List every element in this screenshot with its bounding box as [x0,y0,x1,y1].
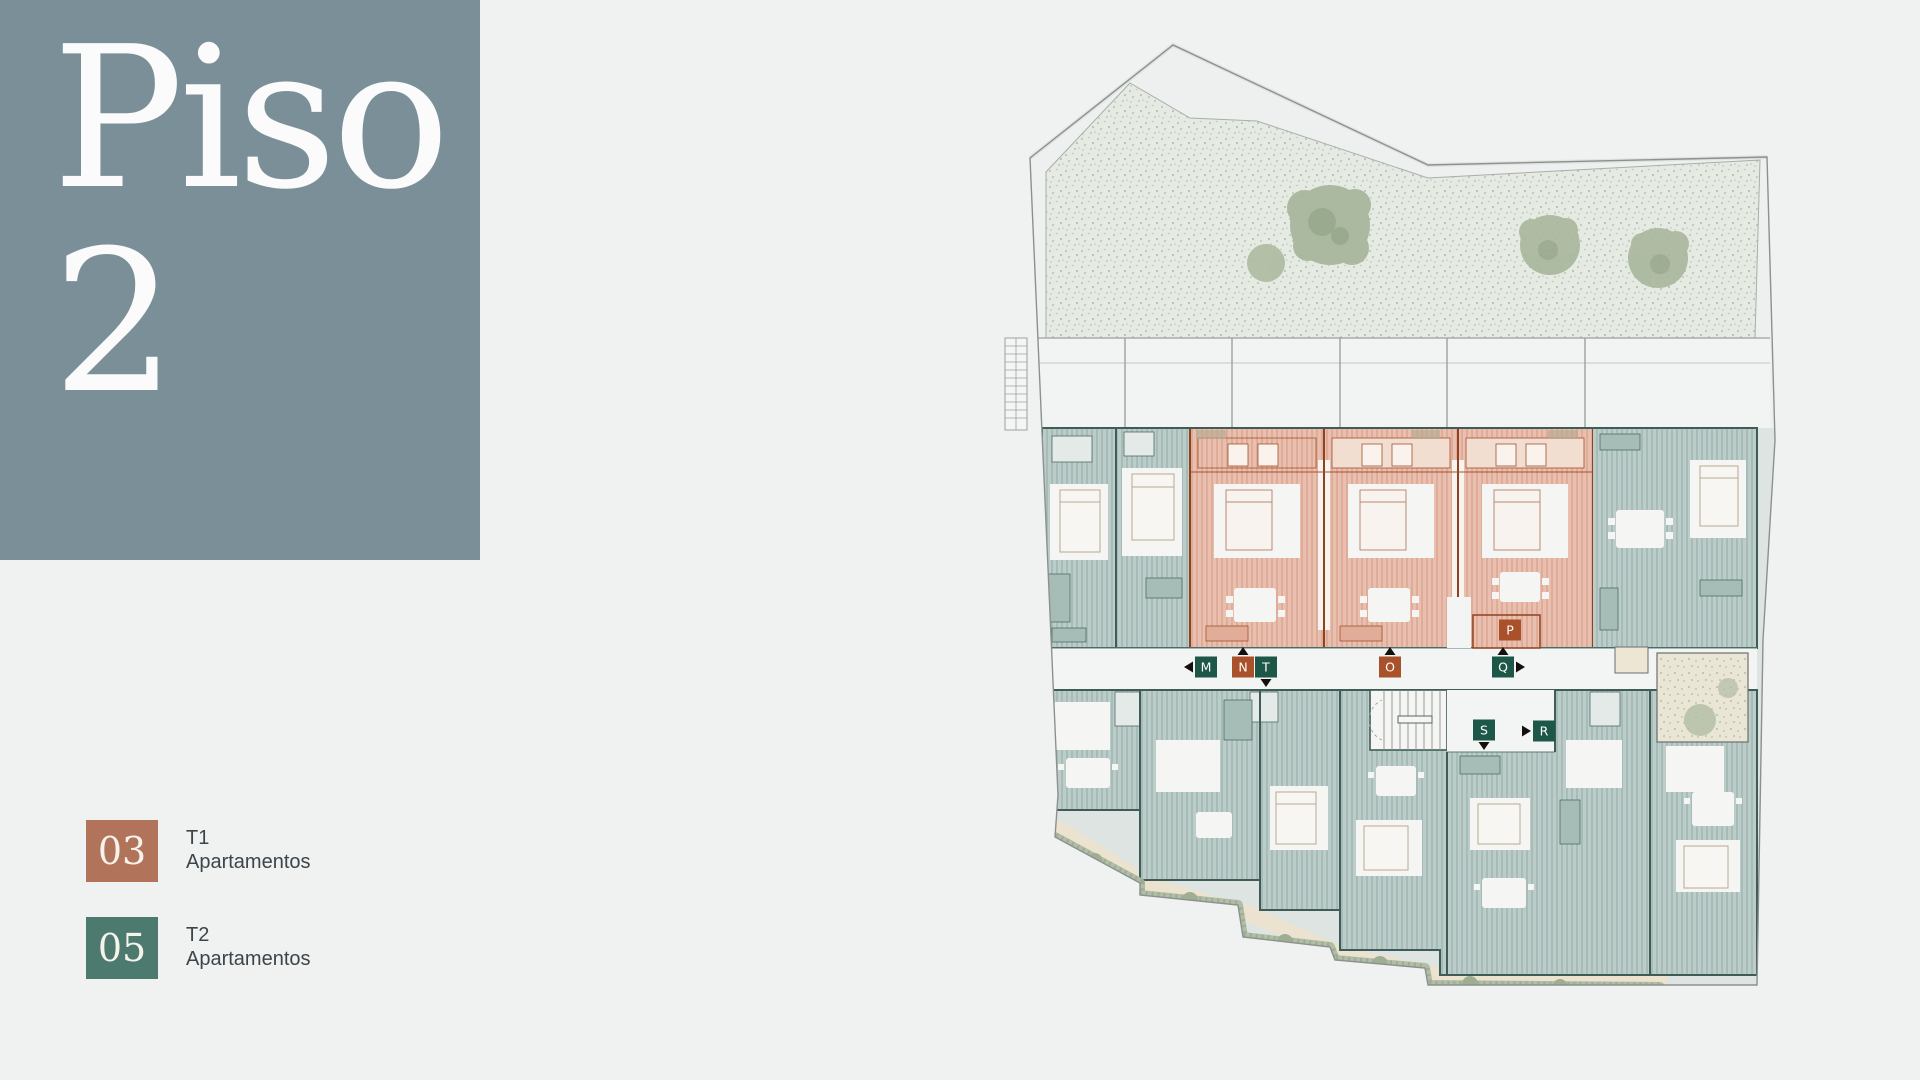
floor-title-word: Piso [52,18,445,222]
legend-type-t2: T2 [186,924,311,948]
legend-count-t1: 03 [98,829,146,873]
floor-title-number: 2 [52,222,445,426]
unit-label-letter-P: P [1506,623,1514,638]
unit-label-letter-N: N [1238,660,1247,675]
legend-item-t2: 05 T2 Apartamentos [86,917,446,979]
legend-label-t2: T2 Apartamentos [186,924,311,971]
floor-plan-svg: MNTOPQSR [1000,40,1790,1015]
lower-apartments [1042,690,1757,975]
unit-label-letter-M: M [1201,660,1212,675]
floor-title: Piso 2 [52,18,445,426]
unit-label-letter-O: O [1385,660,1395,675]
external-stair [1005,338,1027,430]
legend-swatch-t2: 05 [86,917,158,979]
legend-category-t1: Apartamentos [186,851,311,875]
floor-plan: MNTOPQSR [1000,40,1790,1015]
stair-core [1369,690,1447,750]
unit-label-letter-R: R [1540,724,1549,739]
unit-label-letter-Q: Q [1498,660,1508,675]
upper-terraces [1030,338,1770,428]
unit-label-P[interactable]: P [1499,620,1521,641]
floor-title-panel: Piso 2 [0,0,480,560]
unit-label-letter-S: S [1480,723,1488,738]
unit-label-letter-T: T [1261,660,1270,675]
legend-type-t1: T1 [186,827,311,851]
legend: 03 T1 Apartamentos 05 T2 Apartamentos [86,820,446,1014]
legend-item-t1: 03 T1 Apartamentos [86,820,446,882]
legend-swatch-t1: 03 [86,820,158,882]
legend-category-t2: Apartamentos [186,948,311,972]
legend-label-t1: T1 Apartamentos [186,827,311,874]
garden [1046,83,1760,338]
page: { "title_panel": { "line1": "Piso", "lin… [0,0,1920,1080]
upper-apartments [1042,428,1757,648]
legend-count-t2: 05 [98,926,146,970]
